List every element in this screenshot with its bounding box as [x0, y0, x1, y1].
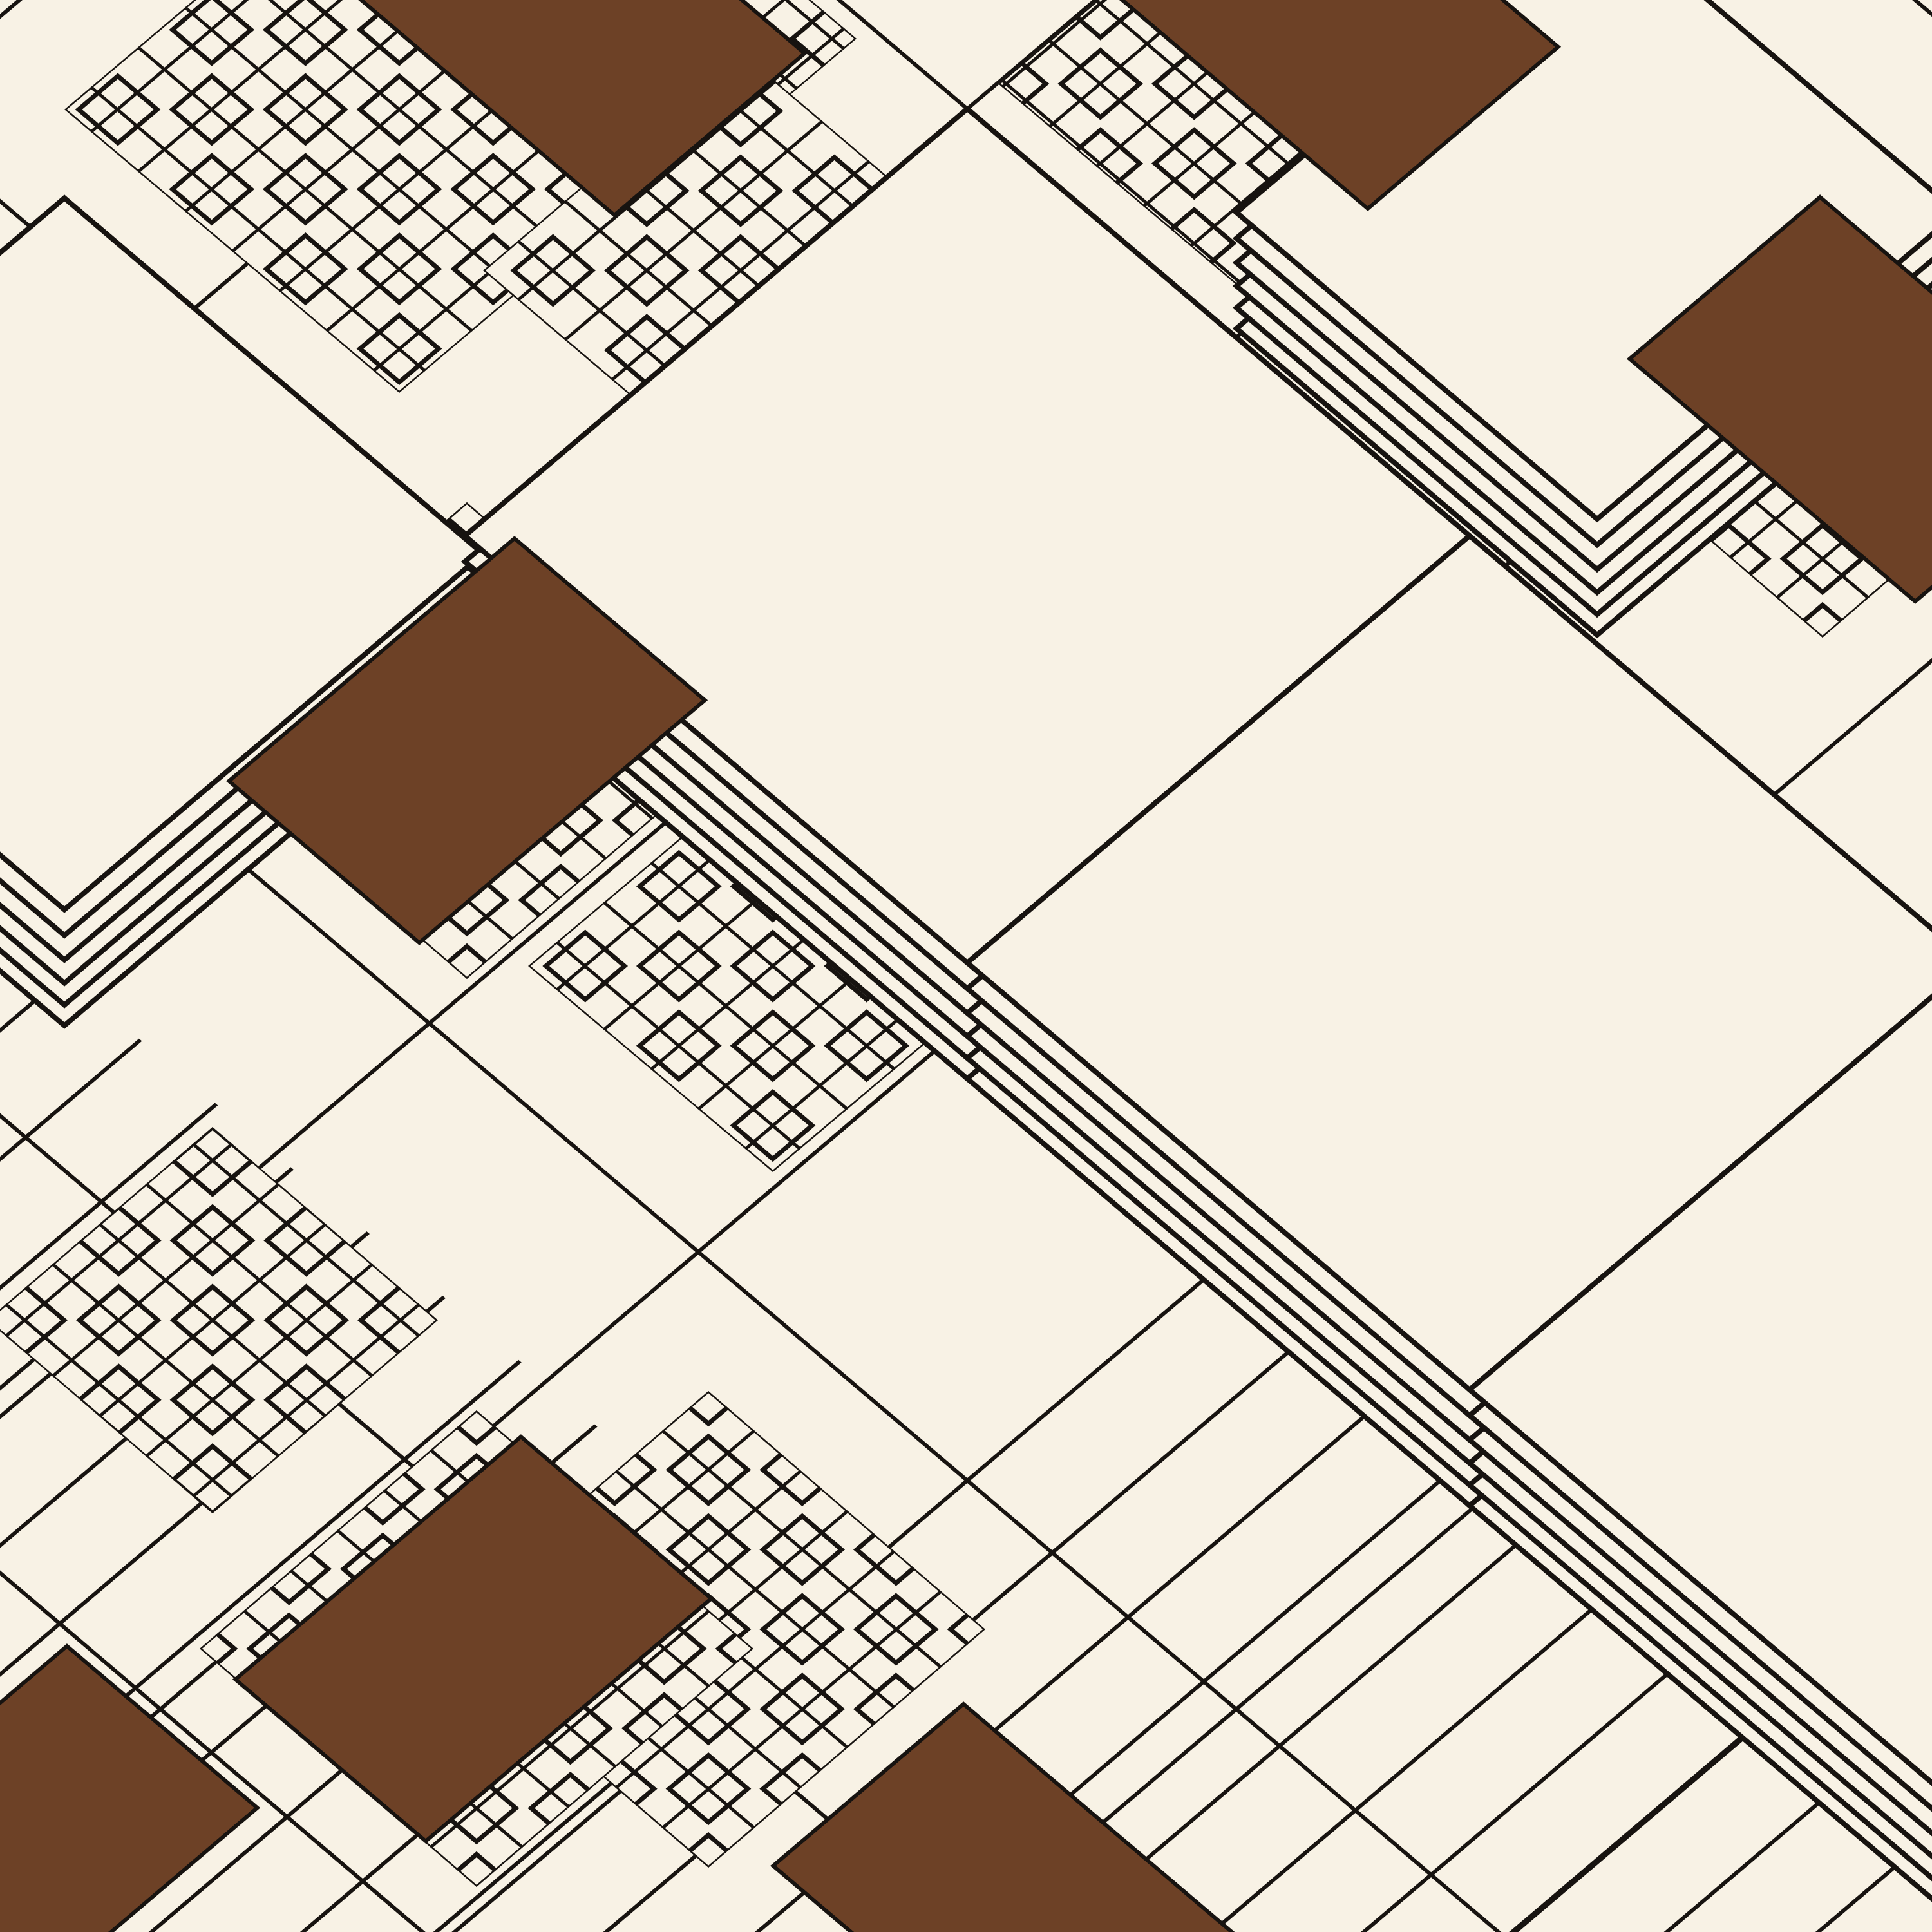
pattern-stage: [0, 0, 1932, 1932]
pattern-canvas: [0, 0, 1932, 1932]
